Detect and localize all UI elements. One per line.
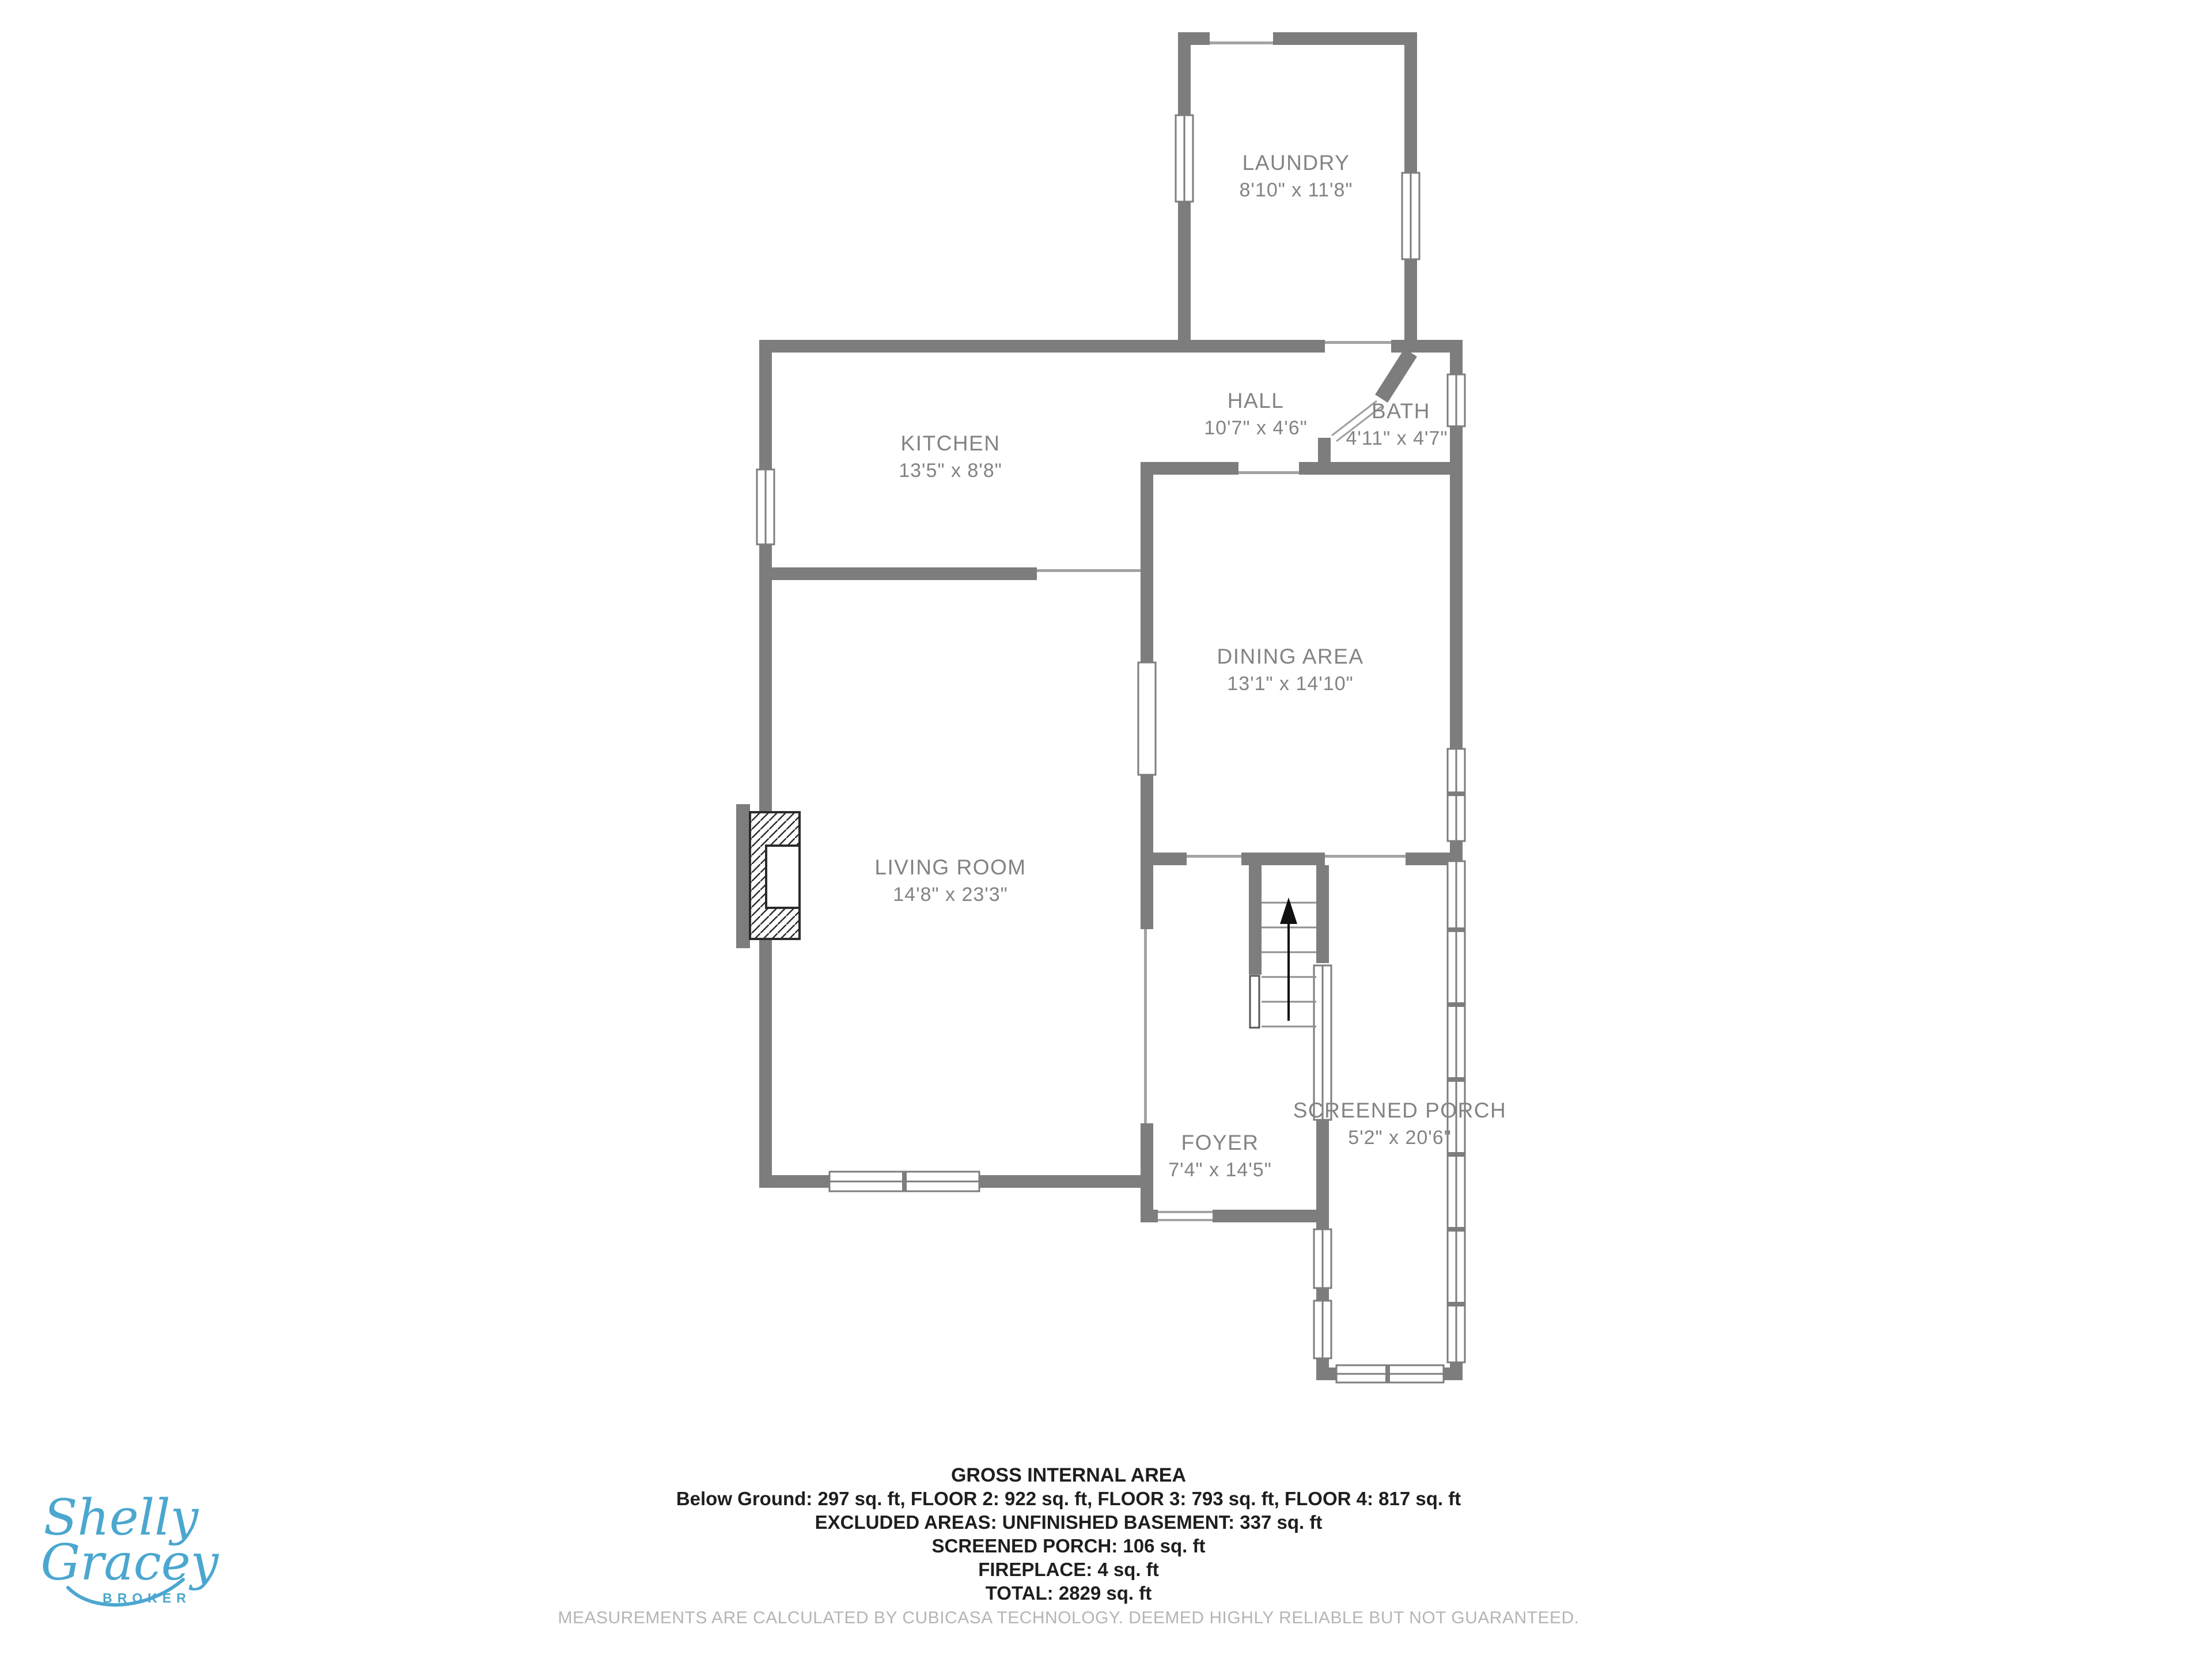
room-label-living: LIVING ROOM [874,855,1026,879]
door-opening-line [1238,471,1299,474]
wall [1141,1210,1158,1222]
opening-line [1037,569,1141,572]
interior-opening [1138,662,1156,775]
area-line-total: TOTAL: 2829 sq. ft [986,1582,1152,1604]
area-line-floors: Below Ground: 297 sq. ft, FLOOR 2: 922 s… [676,1488,1461,1509]
room-label-kitchen: KITCHEN [901,431,1001,455]
wall [1141,462,1153,662]
wall [1141,1123,1153,1222]
wall [1141,853,1187,865]
room-dims-living: 14'8" x 23'3" [893,884,1007,906]
window-mullion [1448,927,1465,932]
window-mullion [1448,1302,1465,1306]
door-opening-line [1210,41,1273,44]
room-dims-bath: 4'11" x 4'7" [1346,427,1448,449]
floor-plan-canvas: LAUNDRY 8'10" x 11'8" KITCHEN 13'5" x 8'… [0,0,2212,1659]
logo-last-name: Gracey [41,1534,219,1592]
door-opening-line [1158,1211,1213,1213]
opening-line [1325,855,1406,858]
wall [1316,1288,1329,1301]
window-mullion [1448,1077,1465,1082]
stairs-up-arrowhead-icon [1280,897,1297,924]
room-dims-dining: 13'1" x 14'10" [1227,673,1353,695]
room-dims-kitchen: 13'5" x 8'8" [899,460,1002,482]
wall [1249,865,1262,975]
wall [1141,462,1238,475]
wall [1273,32,1417,45]
wall [1141,775,1153,929]
floor-plan-page: LAUNDRY 8'10" x 11'8" KITCHEN 13'5" x 8'… [0,0,2212,1659]
wall [1213,1210,1329,1222]
wall [1316,1120,1329,1229]
wall [759,340,1325,353]
opening-line [1144,929,1147,1123]
window-mullion [1385,1365,1390,1382]
measurement-disclaimer: MEASUREMENTS ARE CALCULATED BY CUBICASA … [558,1608,1580,1627]
wall [759,340,772,1188]
door-opening-line [1158,1219,1213,1221]
brand-logo: Shelly Gracey BROKER [41,1489,219,1605]
area-summary: GROSS INTERNAL AREA Below Ground: 297 sq… [558,1464,1580,1627]
wall [1241,853,1325,865]
stair-railing [1250,976,1259,1028]
room-dims-porch: 5'2" x 20'6" [1348,1127,1452,1149]
room-label-hall: HALL [1228,389,1285,412]
area-line-porch: SCREENED PORCH: 106 sq. ft [932,1535,1206,1556]
window-mullion [1448,1152,1465,1157]
wall [759,567,1037,580]
room-label-porch: SCREENED PORCH [1293,1099,1507,1122]
room-label-foyer: FOYER [1181,1131,1259,1154]
room-dims-foyer: 7'4" x 14'5" [1168,1159,1272,1181]
opening-line [1187,855,1241,858]
window-mullion [1448,1002,1465,1007]
logo-broker-title: BROKER [103,1590,191,1605]
wall [1318,438,1331,475]
chimney-bump-wall [736,804,750,948]
wall [1316,865,1329,963]
room-dims-laundry: 8'10" x 11'8" [1240,179,1353,201]
bath-diagonal-wall [1381,353,1411,399]
fireplace [736,804,800,948]
area-line-excluded: EXCLUDED AREAS: UNFINISHED BASEMENT: 337… [815,1512,1323,1533]
gross-internal-area-title: GROSS INTERNAL AREA [951,1464,1186,1486]
window-mullion [902,1172,907,1191]
firebox [766,846,800,908]
floor-plan-windows [757,115,1465,1382]
window-mullion [1448,1227,1465,1232]
door-opening-line [1325,341,1391,344]
room-label-dining: DINING AREA [1217,645,1364,668]
room-dims-hall: 10'7" x 4'6" [1204,417,1308,439]
room-label-laundry: LAUNDRY [1243,151,1350,175]
room-label-bath: BATH [1372,399,1430,423]
window-mullion [1448,791,1465,796]
area-line-fireplace: FIREPLACE: 4 sq. ft [978,1559,1159,1580]
